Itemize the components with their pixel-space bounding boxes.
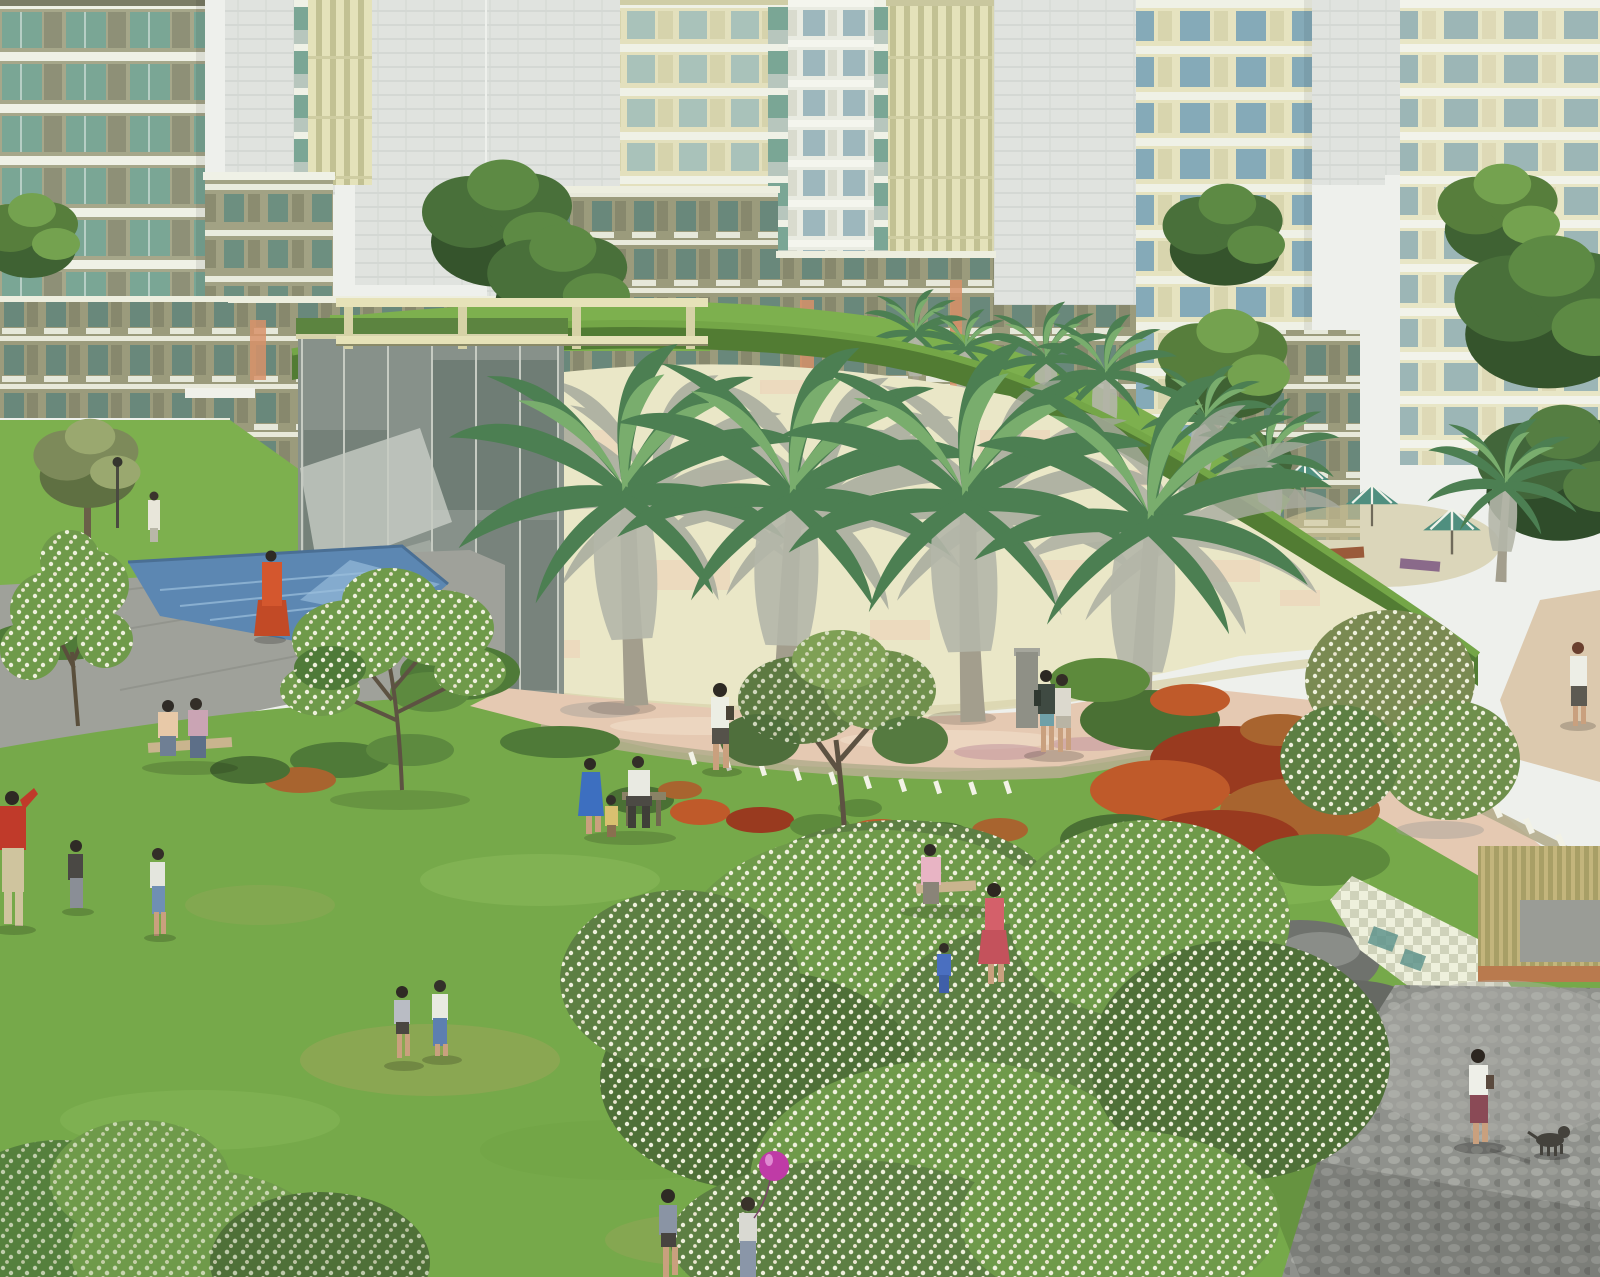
terracotta-edge xyxy=(1478,966,1600,982)
entrance-canopy xyxy=(185,388,255,398)
haze-tower-right xyxy=(1312,0,1400,175)
striped-thin-tower xyxy=(294,0,372,185)
hedge-behind-bench xyxy=(500,726,620,758)
township-rendering xyxy=(0,0,1600,1277)
green-roof-edge xyxy=(296,318,568,336)
deck-inset xyxy=(1520,900,1600,962)
balloon xyxy=(759,1151,789,1181)
rendering-canvas xyxy=(0,0,1600,1277)
